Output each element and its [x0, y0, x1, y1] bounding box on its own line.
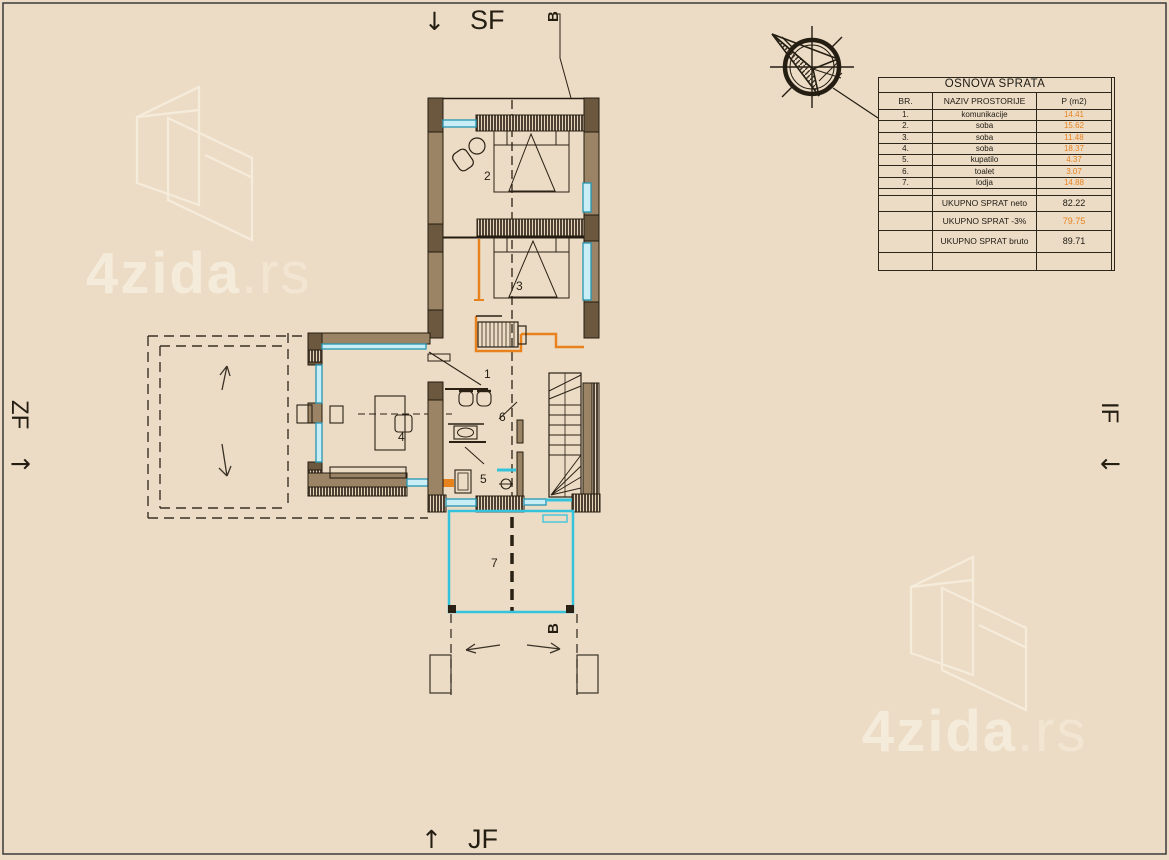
facade-label-west: ZF: [6, 400, 33, 429]
cell-area: 15.62: [1037, 121, 1112, 132]
total-value: 89.71: [1037, 231, 1112, 253]
watermark-tld: .rs: [1017, 699, 1087, 764]
walls-bath: [428, 382, 523, 498]
arrow-up-icon: ↑: [421, 825, 442, 854]
column-header: P (m2): [1037, 93, 1112, 110]
stairs-right-wall: [583, 383, 599, 505]
empty-cell: [1037, 253, 1112, 270]
arrow-down-icon: ↓: [424, 7, 445, 36]
watermark-tld: .rs: [241, 241, 311, 306]
spacer-cell: [1037, 189, 1112, 196]
total-value: 82.22: [1037, 196, 1112, 212]
cell-area: 11.48: [1037, 133, 1112, 144]
arrow-right-icon: →: [10, 449, 31, 478]
empty-cell: [879, 253, 933, 270]
facade-label-east: IF: [1096, 402, 1123, 423]
toilet-room: [445, 389, 517, 442]
cell-name: lodja: [933, 178, 1037, 189]
spacer-cell: [879, 189, 933, 196]
bathroom-room: [455, 447, 516, 493]
cell-br: 5.: [879, 155, 933, 166]
cell-br: 1.: [879, 110, 933, 121]
room-label-7: 7: [491, 556, 498, 570]
facade-label-south: JF: [468, 824, 498, 854]
cell-area: 3.07: [1037, 166, 1112, 177]
arrow-left-icon: ←: [1100, 449, 1121, 478]
cell-br: [879, 231, 933, 253]
cell-br: [879, 196, 933, 212]
below-lodja: [430, 614, 598, 695]
cell-name: kupatilo: [933, 155, 1037, 166]
cell-br: 3.: [879, 133, 933, 144]
room-label-6: 6: [499, 410, 506, 424]
walls-upper-block: [428, 98, 599, 338]
cell-br: 4.: [879, 144, 933, 155]
cell-br: 7.: [879, 178, 933, 189]
bed-room2: [494, 131, 569, 192]
area-table: OSNOVA SPRATABR.NAZIV PROSTORIJEP (m2)1.…: [878, 77, 1115, 271]
total-value: 79.75: [1037, 212, 1112, 231]
cell-name: soba: [933, 144, 1037, 155]
cell-name: soba: [933, 121, 1037, 132]
watermark-text: 4zida.rs: [86, 240, 312, 307]
total-label: UKUPNO SPRAT bruto: [933, 231, 1037, 253]
cell-name: soba: [933, 133, 1037, 144]
radiator: [476, 316, 526, 347]
total-label: UKUPNO SPRAT -3%: [933, 212, 1037, 231]
cell-br: [879, 212, 933, 231]
cell-area: 4.37: [1037, 155, 1112, 166]
room-label-1: 1: [484, 367, 491, 381]
orange-duct: [442, 479, 454, 487]
watermark-brand: 4zida: [86, 241, 241, 306]
cell-br: 6.: [879, 166, 933, 177]
total-label: UKUPNO SPRAT neto: [933, 196, 1037, 212]
cell-name: toalet: [933, 166, 1037, 177]
terrace-slope-arrows: [219, 366, 231, 476]
bed-room3: [494, 238, 569, 298]
facade-label-north: SF: [470, 5, 505, 35]
compass-icon: [770, 26, 878, 118]
room-label-4: 4: [398, 430, 405, 444]
table-title: OSNOVA SPRATA: [879, 78, 1112, 93]
cell-name: komunikacije: [933, 110, 1037, 121]
cell-area: 14.41: [1037, 110, 1112, 121]
chair-room2: [451, 138, 485, 173]
section-marker-top: B: [545, 11, 562, 22]
spacer-cell: [933, 189, 1037, 196]
hall-details: [358, 352, 481, 414]
room-label-2: 2: [484, 169, 491, 183]
cell-br: 2.: [879, 121, 933, 132]
watermark-text: 4zida.rs: [862, 698, 1088, 765]
stairs: [549, 373, 581, 497]
empty-cell: [933, 253, 1037, 270]
column-header: NAZIV PROSTORIJE: [933, 93, 1037, 110]
section-marker-bottom: B: [545, 623, 562, 634]
room-label-3: 3: [516, 279, 523, 293]
floorplan-page: 1 2 3 4 5 6 7 SF ↓ JF ↑ ZF → IF ← B B 4z…: [0, 0, 1169, 860]
cell-area: 14.88: [1037, 178, 1112, 189]
column-header: BR.: [879, 93, 933, 110]
room-label-5: 5: [480, 472, 487, 486]
cell-area: 18.37: [1037, 144, 1112, 155]
watermark-brand: 4zida: [862, 699, 1017, 764]
